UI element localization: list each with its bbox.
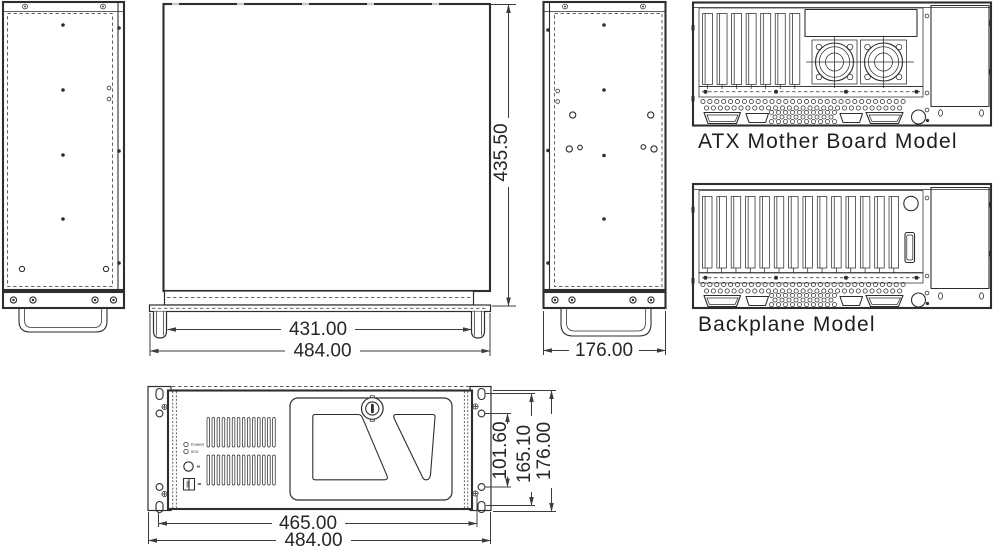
rear-panel-outline (693, 3, 991, 126)
dim-outer-width-label: 484.00 (293, 341, 351, 362)
foot-right (472, 312, 485, 339)
dim-inner-width-label: 431.00 (289, 319, 347, 340)
power-led-label: POWER (191, 443, 205, 447)
chassis-top-outline (164, 4, 491, 291)
front-panel-view: POWER HDD (148, 387, 556, 552)
side-panel-outline (3, 2, 124, 290)
atx-model-label: ATX Mother Board Model (698, 130, 958, 153)
bottom-rail (3, 292, 124, 308)
right-side-view: 176.00 (544, 2, 666, 361)
backplane-rear-view: Backplane Model (692, 184, 992, 336)
left-side-view (3, 2, 124, 332)
dim-total-height-label: 176.00 (534, 422, 555, 480)
chassis-dimensional-drawing: 431.00 484.00 435.50 (0, 0, 999, 552)
front-door (290, 396, 452, 500)
backplane-model-label: Backplane Model (698, 313, 876, 336)
bottom-rail (544, 292, 666, 308)
atx-rear-view: ATX Mother Board Model (692, 3, 992, 154)
hdd-led-label: HDD (191, 450, 199, 454)
dim-height-label: 435.50 (491, 123, 512, 181)
carry-handle (19, 308, 107, 332)
side-panel-outline (544, 2, 666, 290)
rear-flange (165, 291, 474, 305)
dim-front-outer-width-label: 484.00 (284, 530, 342, 551)
drawing-svg: 431.00 484.00 435.50 (0, 0, 999, 552)
dim-ear-height-label: 165.10 (514, 425, 535, 483)
dim-depth-label: 176.00 (575, 340, 633, 361)
top-view: 431.00 484.00 435.50 (150, 4, 517, 362)
dim-depth-overall: 435.50 (491, 5, 516, 307)
rear-panel-outline (693, 184, 991, 308)
dim-window-height-label: 101.60 (490, 421, 511, 479)
carry-handle (561, 308, 651, 336)
foot-left (154, 312, 167, 339)
dim-front-window-height: 101.60 (486, 414, 512, 488)
dim-inner-width: 431.00 (168, 319, 472, 340)
